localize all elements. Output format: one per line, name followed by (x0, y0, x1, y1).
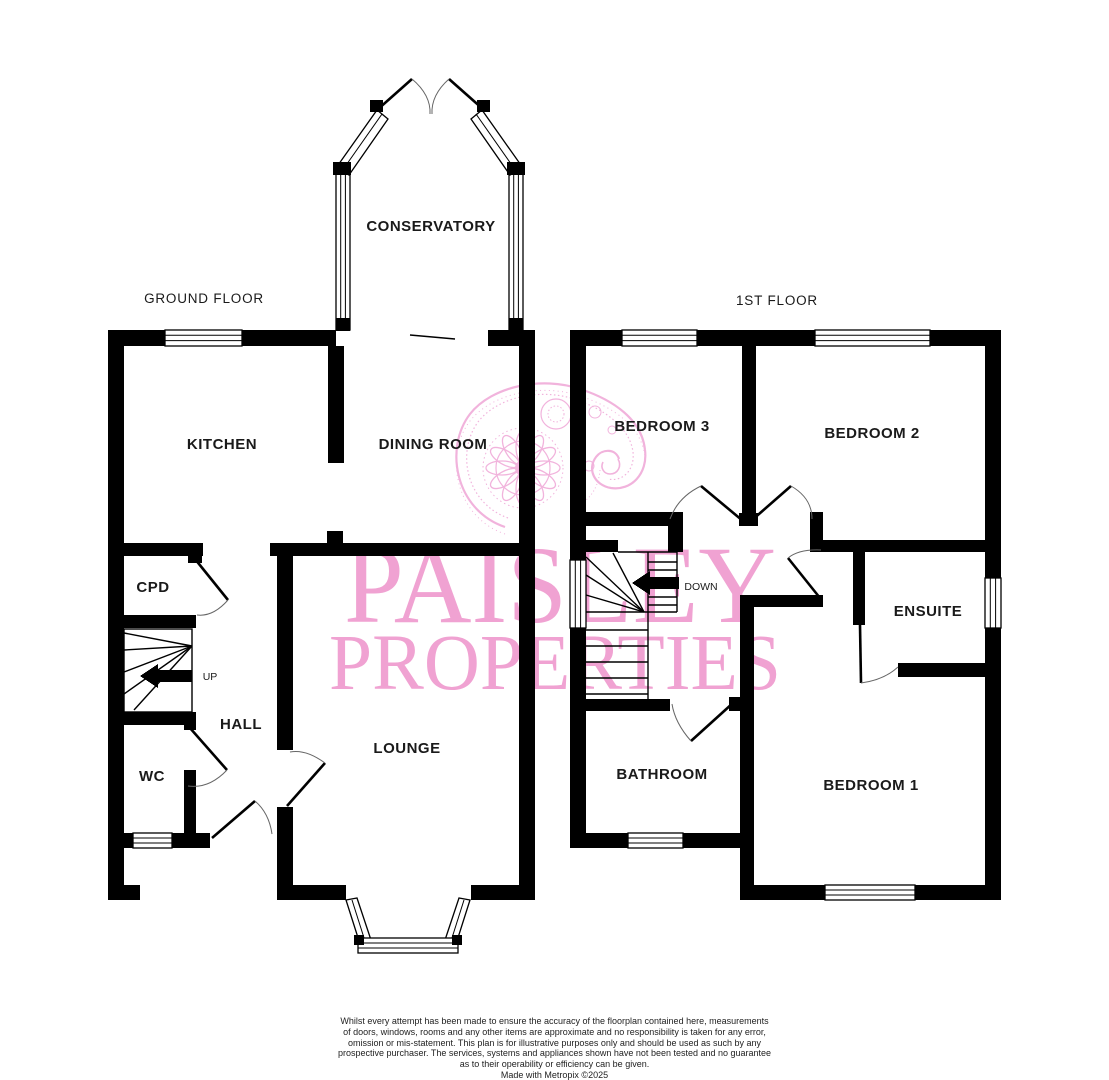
up-arrow-icon (140, 664, 192, 688)
landing-window (570, 560, 586, 628)
room-label-hall: HALL (220, 716, 262, 733)
down-label: DOWN (684, 581, 717, 593)
room-label-bathroom: BATHROOM (616, 766, 707, 783)
disclaimer-line: omission or mis-statement. This plan is … (0, 1038, 1109, 1049)
ground-floor-stairs (124, 629, 192, 712)
room-label-wc: WC (139, 768, 165, 785)
disclaimer: Whilst every attempt has been made to en… (0, 1016, 1109, 1080)
ensuite-window (985, 578, 1001, 628)
bedroom1-window (825, 885, 915, 900)
room-label-ensuite: ENSUITE (894, 603, 963, 620)
lounge-door (287, 751, 325, 806)
paisley-logo-motif (456, 383, 645, 534)
disclaimer-line: prospective purchaser. The services, sys… (0, 1048, 1109, 1059)
room-label-conservatory: CONSERVATORY (366, 218, 495, 235)
room-label-bedroom3: BEDROOM 3 (614, 418, 709, 435)
disclaimer-line: Whilst every attempt has been made to en… (0, 1016, 1109, 1027)
front-door (212, 801, 272, 838)
floorplan-drawing: PAISLEY PROPERTIES (0, 0, 1109, 1080)
disclaimer-line: of doors, windows, rooms and any other i… (0, 1027, 1109, 1038)
ground-floor-plan: GROUND FLOOR CONSERVATORY KITCHEN DINING… (108, 79, 535, 953)
bedroom1-door (788, 550, 821, 598)
ensuite-door (860, 625, 898, 683)
room-label-cpd: CPD (136, 579, 169, 596)
room-label-bedroom1: BEDROOM 1 (823, 777, 918, 794)
room-label-bedroom2: BEDROOM 2 (824, 425, 919, 442)
bay-window (346, 898, 470, 953)
disclaimer-line: as to their operability or efficiency ca… (0, 1059, 1109, 1070)
bathroom-door (672, 703, 733, 741)
floorplan-page: PAISLEY PROPERTIES (0, 0, 1109, 1080)
room-label-lounge: LOUNGE (373, 740, 440, 757)
conservatory-structure (333, 79, 525, 331)
bathroom-window (628, 833, 683, 848)
up-label: UP (203, 671, 218, 683)
ground-floor-title: GROUND FLOOR (144, 291, 264, 306)
first-floor-title: 1ST FLOOR (736, 293, 818, 308)
kitchen-window (165, 330, 242, 346)
room-label-kitchen: KITCHEN (187, 436, 257, 453)
cpd-door (195, 559, 228, 615)
watermark-line2: PROPERTIES (329, 620, 781, 707)
bedroom2-door (751, 486, 812, 521)
bedroom2-window (815, 330, 930, 346)
metropix-credit: Made with Metropix ©2025 (0, 1070, 1109, 1080)
room-label-dining-room: DINING ROOM (379, 436, 488, 453)
bedroom3-window (622, 330, 697, 346)
wc-window (133, 833, 172, 848)
